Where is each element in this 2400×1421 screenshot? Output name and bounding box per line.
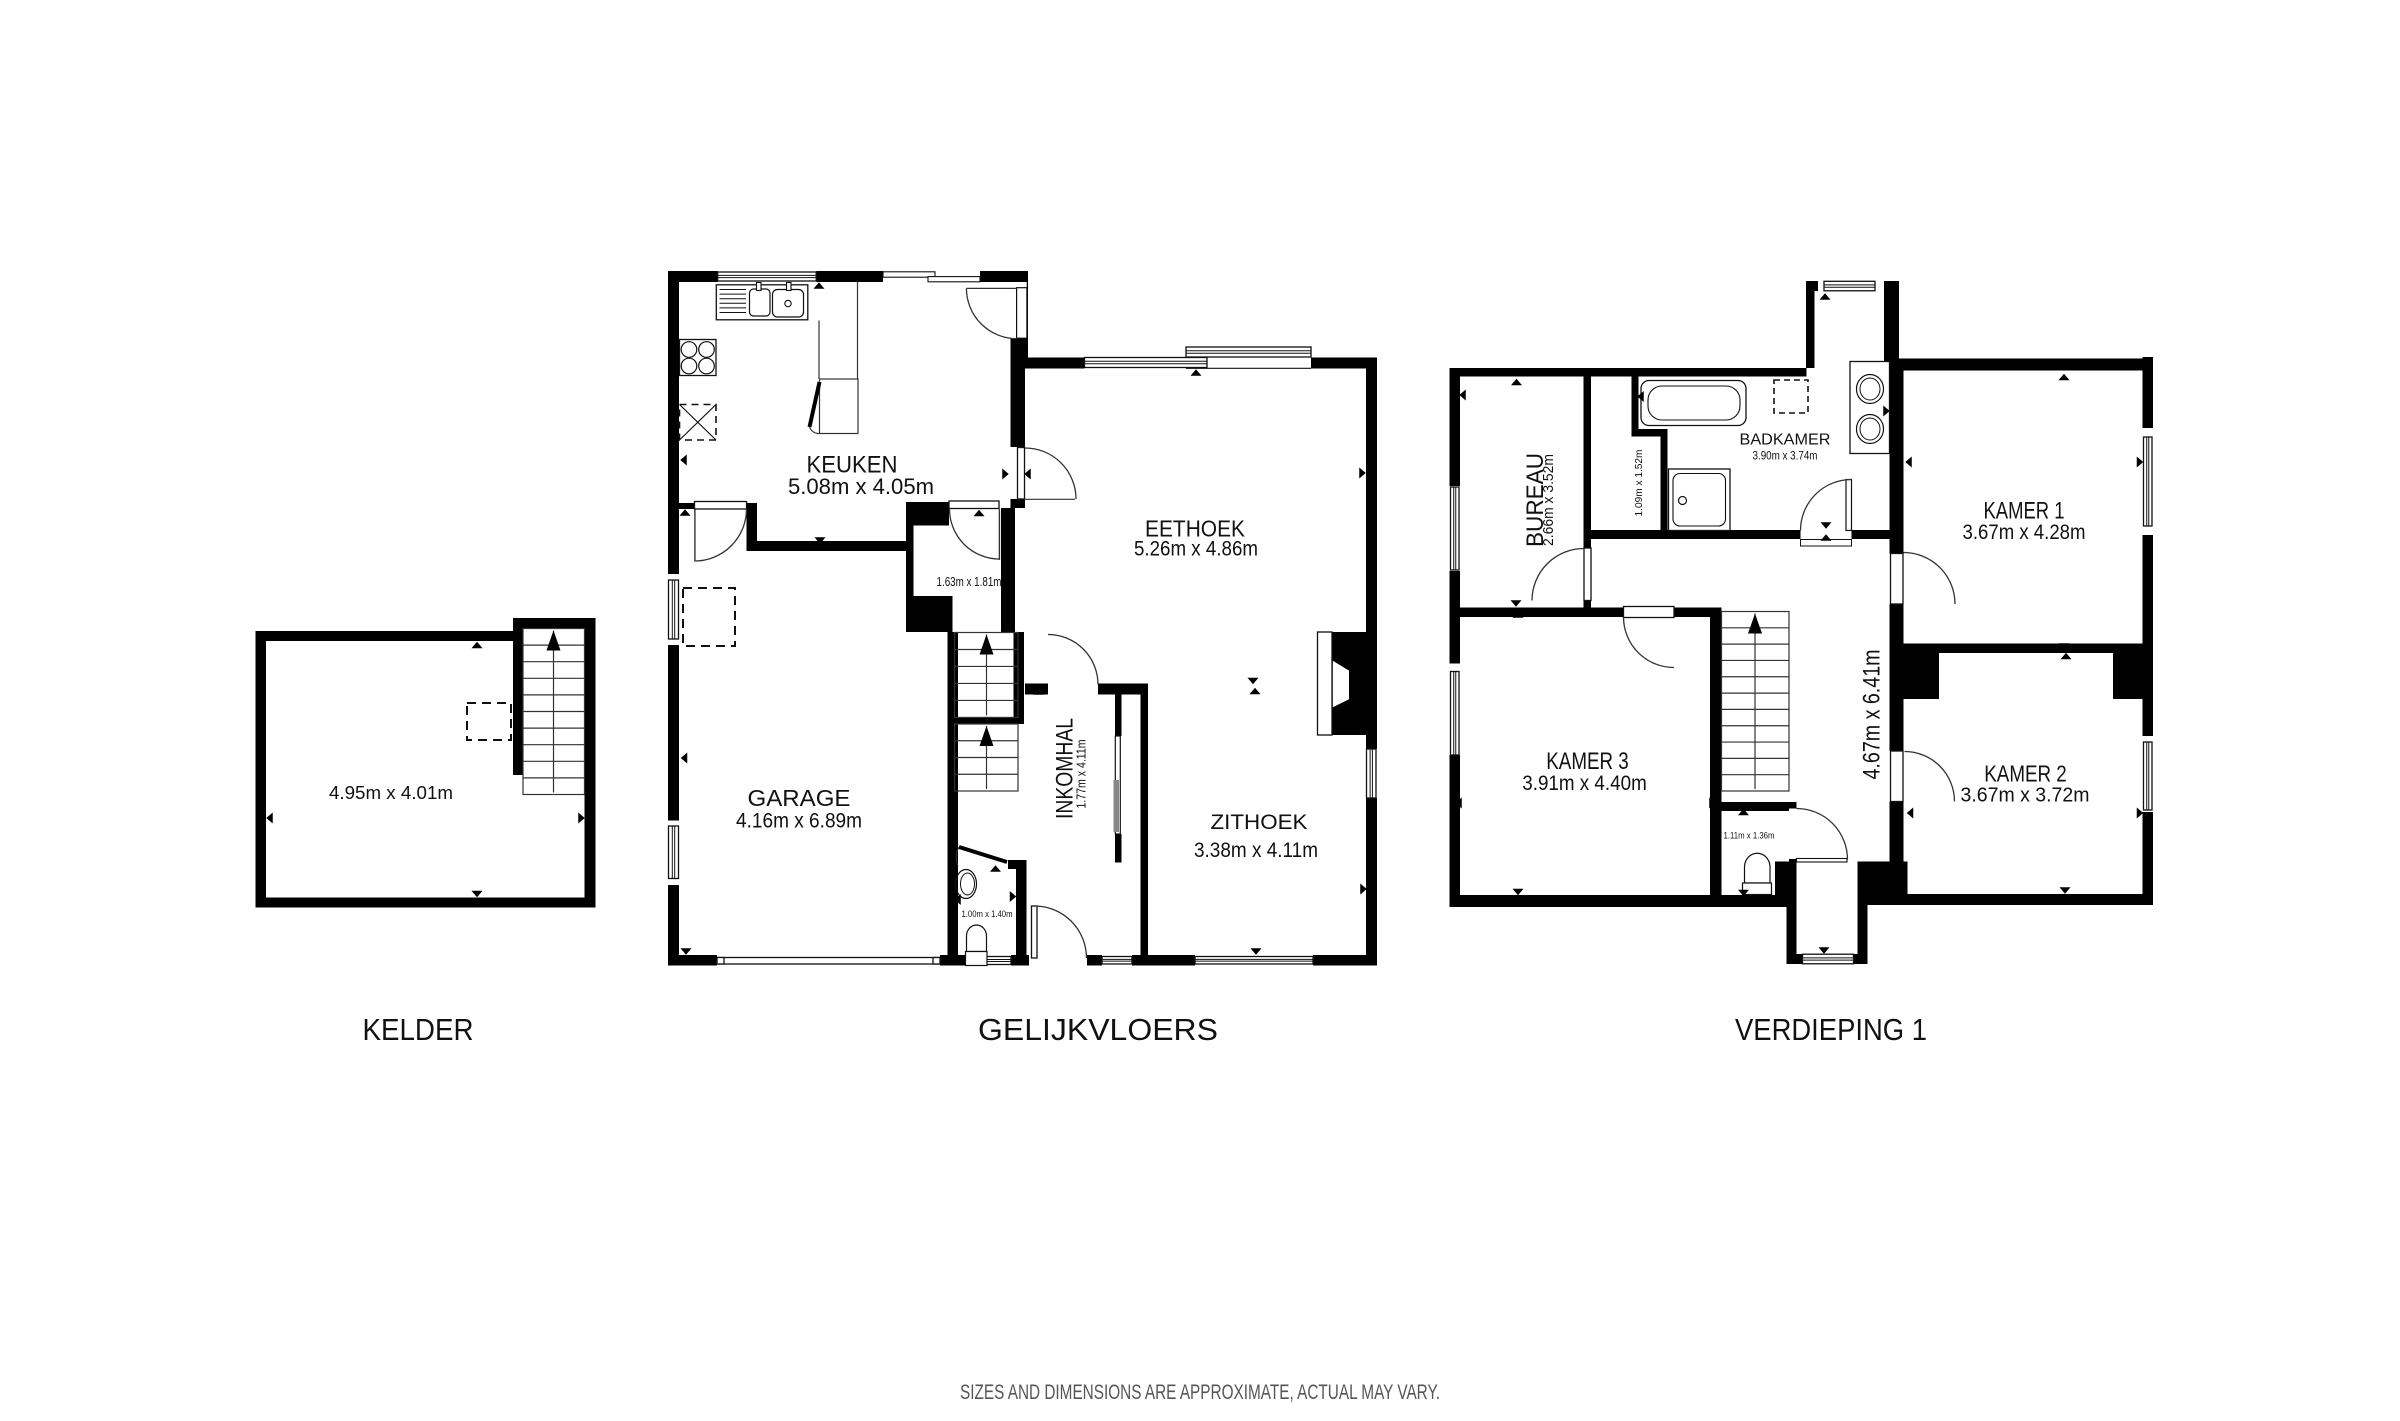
svg-text:1.09m x 1.52m: 1.09m x 1.52m: [1634, 450, 1645, 517]
svg-text:5.08m x 4.05m: 5.08m x 4.05m: [788, 474, 934, 499]
svg-text:ZITHOEK: ZITHOEK: [1211, 811, 1308, 834]
svg-text:KELDER: KELDER: [363, 1012, 474, 1047]
svg-text:3.90m x 3.74m: 3.90m x 3.74m: [1753, 451, 1818, 463]
svg-text:GELIJKVLOERS: GELIJKVLOERS: [978, 1012, 1218, 1047]
svg-text:VERDIEPING 1: VERDIEPING 1: [1735, 1012, 1927, 1047]
svg-text:4.16m x 6.89m: 4.16m x 6.89m: [736, 810, 862, 833]
svg-text:3.67m x 4.28m: 3.67m x 4.28m: [1963, 520, 2086, 544]
svg-text:1.00m x 1.40m: 1.00m x 1.40m: [962, 909, 1013, 919]
svg-text:3.38m x 4.11m: 3.38m x 4.11m: [1194, 839, 1318, 862]
svg-text:GARAGE: GARAGE: [748, 785, 851, 811]
svg-text:1.63m x 1.81m: 1.63m x 1.81m: [937, 574, 1002, 589]
svg-text:4.67m x 6.41m: 4.67m x 6.41m: [1859, 650, 1886, 780]
svg-text:SIZES AND DIMENSIONS ARE APPRO: SIZES AND DIMENSIONS ARE APPROXIMATE, AC…: [960, 1381, 1440, 1404]
svg-text:1.11m x 1.36m: 1.11m x 1.36m: [1724, 831, 1775, 842]
svg-text:5.26m x 4.86m: 5.26m x 4.86m: [1134, 537, 1258, 561]
svg-text:KAMER 3: KAMER 3: [1546, 748, 1629, 775]
svg-text:4.95m x 4.01m: 4.95m x 4.01m: [329, 782, 453, 803]
svg-text:BADKAMER: BADKAMER: [1740, 432, 1831, 449]
svg-text:3.67m x 3.72m: 3.67m x 3.72m: [1961, 784, 2090, 807]
svg-text:2.66m x 3.52m: 2.66m x 3.52m: [1541, 454, 1557, 546]
svg-text:3.91m x 4.40m: 3.91m x 4.40m: [1522, 772, 1647, 795]
svg-text:1.77m x 4.11m: 1.77m x 4.11m: [1075, 740, 1089, 809]
